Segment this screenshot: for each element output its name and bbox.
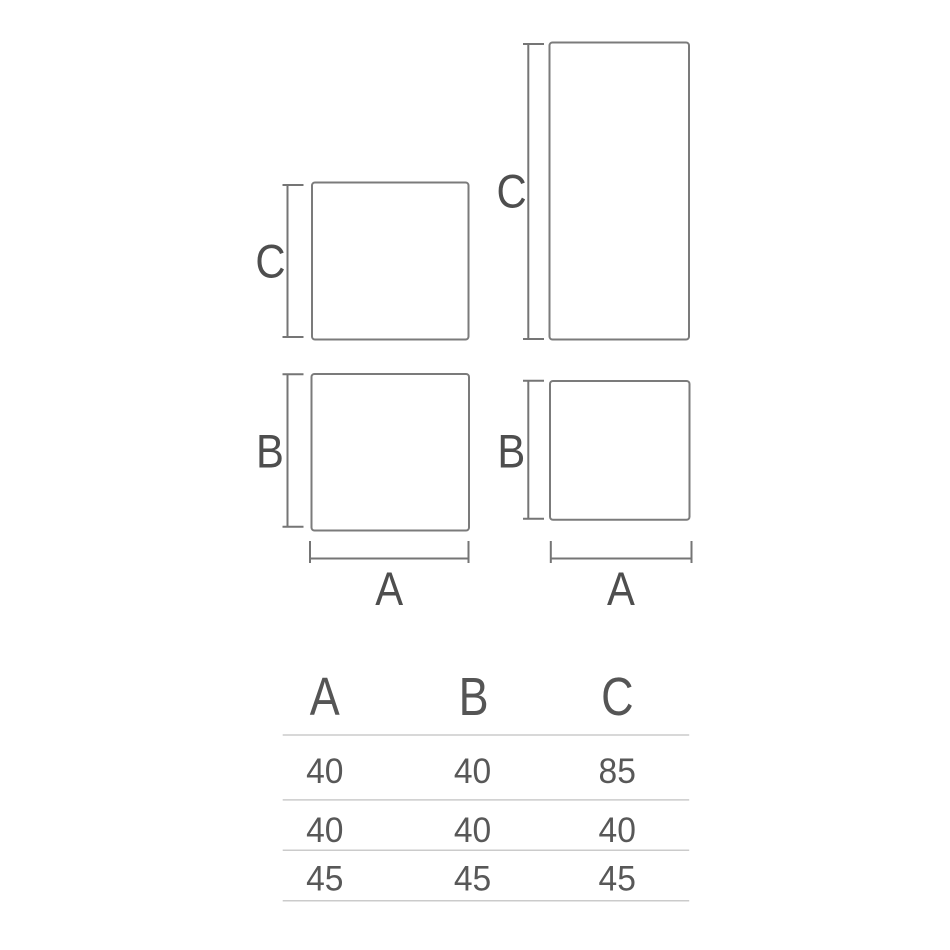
svg-text:85: 85 [599, 752, 636, 791]
svg-text:40: 40 [306, 752, 343, 791]
svg-text:A: A [607, 563, 635, 616]
svg-text:B: B [459, 667, 489, 727]
svg-text:B: B [256, 425, 284, 478]
svg-text:C: C [255, 235, 285, 288]
svg-text:A: A [310, 667, 340, 727]
svg-text:A: A [375, 563, 403, 616]
svg-text:40: 40 [454, 811, 491, 850]
svg-text:40: 40 [306, 811, 343, 850]
svg-text:45: 45 [599, 860, 636, 899]
svg-text:45: 45 [454, 860, 491, 899]
svg-text:B: B [497, 425, 525, 478]
svg-text:40: 40 [599, 811, 636, 850]
svg-text:40: 40 [454, 752, 491, 791]
svg-text:C: C [601, 667, 633, 727]
svg-text:C: C [497, 165, 527, 218]
svg-text:45: 45 [306, 860, 343, 899]
